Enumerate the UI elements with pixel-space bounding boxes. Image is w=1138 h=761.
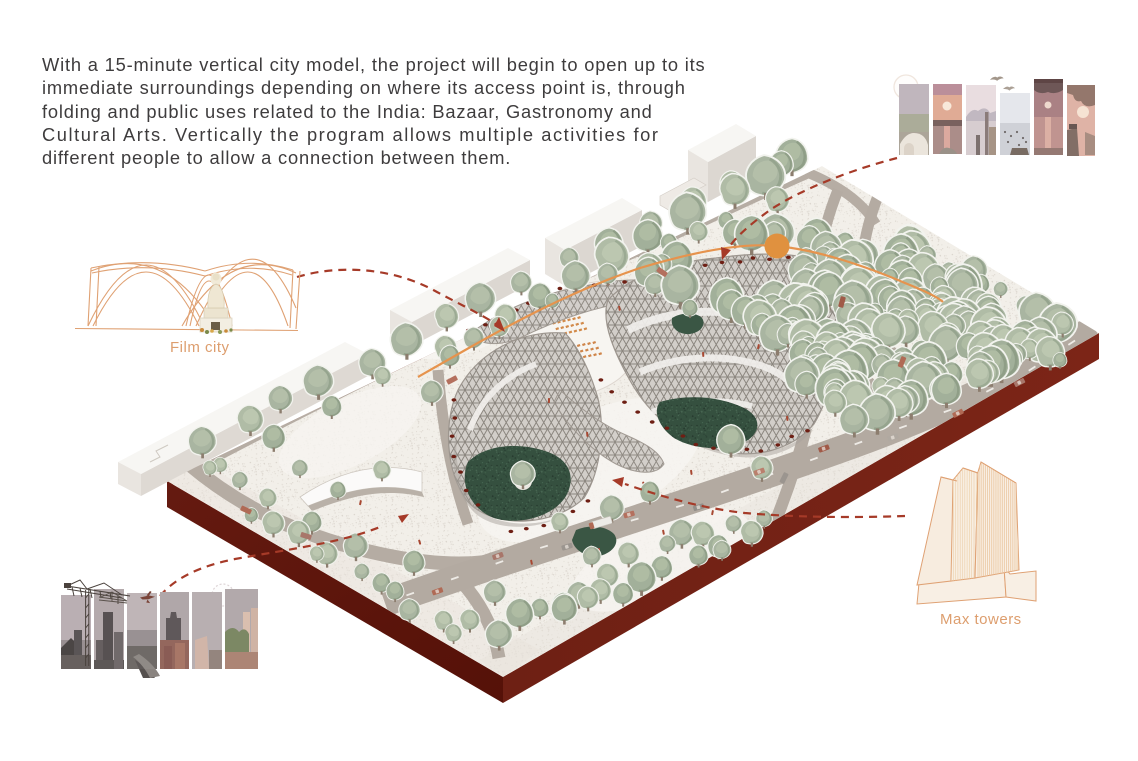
svg-text:Max towers: Max towers (940, 611, 1022, 628)
svg-text:Film city: Film city (170, 339, 230, 356)
